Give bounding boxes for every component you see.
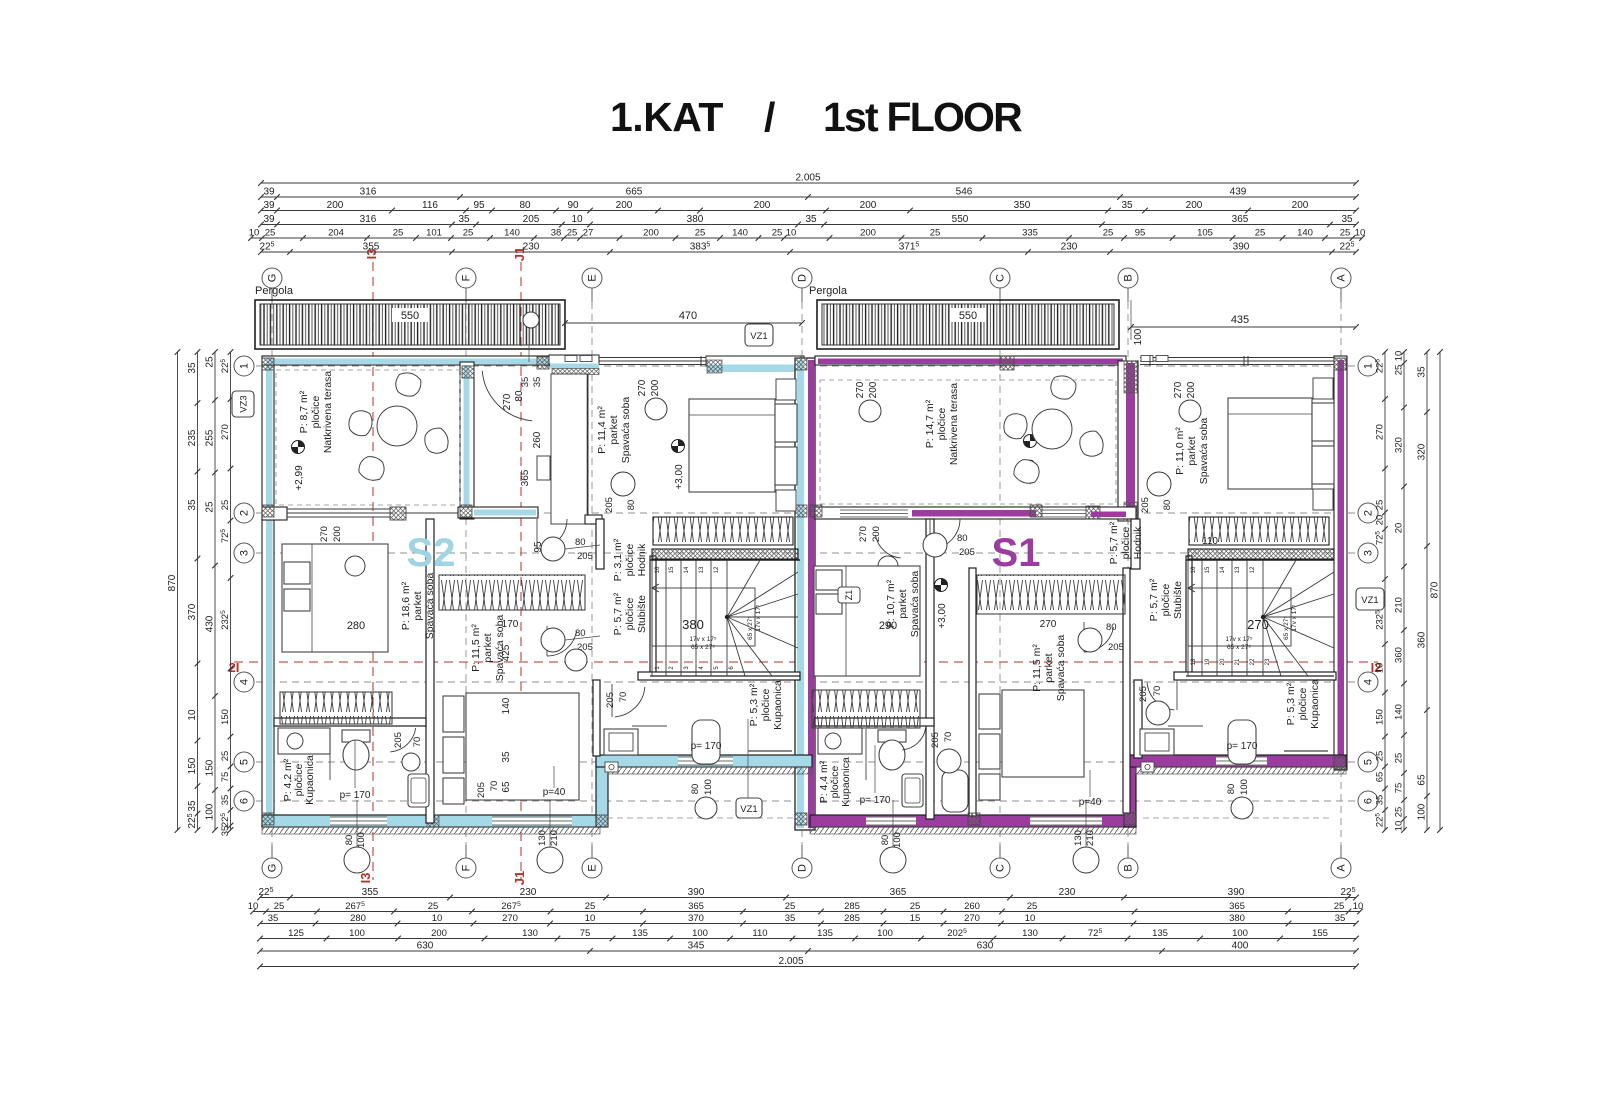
svg-text:116: 116 — [422, 200, 438, 211]
svg-text:P: 4,4 m²: P: 4,4 m² — [818, 760, 830, 803]
svg-text:Kupaonica: Kupaonica — [840, 757, 852, 807]
svg-text:35: 35 — [1341, 214, 1353, 225]
svg-text:205: 205 — [393, 732, 404, 748]
svg-text:400: 400 — [1232, 941, 1249, 952]
svg-text:285: 285 — [844, 901, 860, 912]
svg-text:P: 5,7 m²: P: 5,7 m² — [612, 592, 624, 635]
svg-text:135: 135 — [817, 928, 833, 939]
svg-text:1: 1 — [1363, 363, 1375, 369]
svg-text:10: 10 — [786, 228, 797, 239]
svg-text:200: 200 — [332, 526, 343, 542]
svg-text:270: 270 — [964, 913, 980, 924]
svg-text:2.005: 2.005 — [795, 173, 820, 184]
svg-text:380: 380 — [1229, 913, 1245, 924]
svg-text:320: 320 — [1394, 437, 1405, 453]
svg-text:E: E — [587, 274, 599, 281]
svg-text:665: 665 — [626, 187, 643, 198]
svg-text:200: 200 — [860, 200, 877, 211]
svg-text:P: 4,2 m²: P: 4,2 m² — [282, 758, 294, 801]
svg-text:1st FLOOR: 1st FLOOR — [823, 94, 1022, 140]
svg-text:25: 25 — [585, 901, 596, 912]
svg-text:2.005: 2.005 — [778, 956, 803, 967]
svg-text:B: B — [1123, 274, 1135, 281]
svg-text:B: B — [1123, 864, 1135, 871]
svg-text:25: 25 — [220, 751, 231, 762]
svg-text:80: 80 — [957, 533, 968, 544]
svg-text:390: 390 — [688, 887, 705, 898]
svg-text:140: 140 — [732, 228, 748, 239]
svg-text:65: 65 — [1417, 774, 1428, 786]
svg-text:70: 70 — [943, 732, 954, 743]
svg-text:550: 550 — [401, 310, 419, 322]
svg-text:25: 25 — [463, 228, 474, 239]
svg-text:pločice: pločice — [624, 543, 636, 576]
svg-text:80: 80 — [1162, 500, 1173, 511]
svg-text:270: 270 — [858, 526, 869, 542]
svg-text:25: 25 — [393, 228, 404, 239]
svg-text:pločice: pločice — [936, 407, 948, 440]
svg-text:10: 10 — [187, 709, 198, 721]
svg-text:Spavaća soba: Spavaća soba — [620, 397, 632, 464]
svg-text:10: 10 — [1394, 351, 1405, 362]
svg-text:205: 205 — [1138, 686, 1149, 702]
svg-text:140: 140 — [1394, 704, 1405, 720]
svg-text:35: 35 — [501, 751, 512, 763]
svg-text:parket: parket — [1186, 436, 1198, 465]
svg-text:65: 65 — [501, 781, 512, 793]
svg-text:200: 200 — [1292, 200, 1309, 211]
svg-text:70: 70 — [618, 692, 629, 703]
svg-text:Spavaća soba: Spavaća soba — [494, 615, 506, 682]
svg-text:270: 270 — [1247, 617, 1269, 632]
svg-text:parket: parket — [482, 633, 494, 662]
svg-text:205: 205 — [523, 214, 540, 225]
svg-text:135: 135 — [1152, 928, 1168, 939]
svg-text:470: 470 — [679, 310, 697, 322]
svg-text:15: 15 — [669, 566, 675, 573]
svg-text:130: 130 — [537, 830, 548, 846]
svg-text:235: 235 — [187, 429, 198, 446]
svg-text:25: 25 — [274, 901, 285, 912]
svg-text:15: 15 — [1205, 566, 1211, 573]
svg-text:270: 270 — [637, 379, 648, 396]
svg-text:P: 18,6 m²: P: 18,6 m² — [400, 581, 412, 630]
svg-text:3: 3 — [1363, 550, 1375, 556]
svg-text:205: 205 — [577, 551, 593, 562]
svg-text:Stubište: Stubište — [636, 595, 648, 633]
svg-text:150: 150 — [205, 759, 216, 776]
svg-text:F: F — [461, 274, 473, 281]
svg-text:80: 80 — [626, 500, 637, 511]
svg-text:25: 25 — [205, 356, 216, 368]
svg-text:350: 350 — [1014, 200, 1031, 211]
svg-text:VZ1: VZ1 — [740, 804, 757, 815]
svg-text:200: 200 — [1186, 381, 1197, 398]
svg-text:Kupaonica: Kupaonica — [304, 755, 316, 805]
svg-text:210: 210 — [1394, 597, 1405, 613]
svg-text:21: 21 — [1235, 658, 1241, 665]
svg-text:D: D — [797, 864, 809, 872]
svg-text:270: 270 — [855, 381, 866, 398]
svg-text:Spavaća soba: Spavaća soba — [424, 573, 436, 640]
svg-text:P: 10,7 m²: P: 10,7 m² — [885, 579, 897, 628]
svg-text:870: 870 — [1430, 581, 1441, 598]
svg-text:345: 345 — [688, 941, 705, 952]
svg-text:I3: I3 — [358, 873, 373, 884]
svg-text:390: 390 — [1228, 887, 1245, 898]
svg-text:Natkrivena terasa: Natkrivena terasa — [948, 383, 960, 465]
svg-text:pločice: pločice — [1160, 583, 1172, 616]
svg-text:360: 360 — [1417, 631, 1428, 648]
svg-text:2: 2 — [1363, 510, 1375, 516]
svg-text:150: 150 — [187, 757, 198, 774]
svg-text:35: 35 — [187, 362, 198, 374]
svg-text:100: 100 — [1239, 779, 1250, 795]
svg-text:19: 19 — [1205, 658, 1211, 665]
svg-text:25: 25 — [567, 228, 578, 239]
svg-text:pločice: pločice — [624, 597, 636, 630]
svg-text:25: 25 — [1375, 751, 1386, 762]
svg-text:270: 270 — [319, 526, 330, 542]
svg-text:10: 10 — [249, 228, 260, 239]
svg-text:65 x 27⁵: 65 x 27⁵ — [1283, 616, 1290, 640]
svg-text:35: 35 — [520, 377, 531, 388]
svg-text:20: 20 — [1220, 658, 1226, 665]
svg-text:35: 35 — [268, 913, 279, 924]
svg-text:parket: parket — [1043, 653, 1055, 682]
svg-text:365: 365 — [520, 469, 531, 486]
svg-text:15: 15 — [910, 913, 921, 924]
svg-text:39: 39 — [263, 214, 275, 225]
svg-text:35: 35 — [1335, 913, 1346, 924]
svg-text:35: 35 — [1417, 366, 1428, 378]
svg-text:100: 100 — [1133, 328, 1144, 345]
svg-text:365: 365 — [1232, 214, 1249, 225]
svg-text:630: 630 — [977, 941, 994, 952]
svg-text:205: 205 — [1108, 642, 1124, 653]
svg-text:parket: parket — [412, 591, 424, 620]
svg-text:280: 280 — [350, 913, 366, 924]
svg-text:365: 365 — [890, 887, 907, 898]
svg-text:80: 80 — [519, 200, 531, 211]
svg-text:25: 25 — [1394, 365, 1405, 376]
svg-text:25: 25 — [695, 228, 706, 239]
svg-text:35: 35 — [785, 913, 796, 924]
svg-text:230: 230 — [523, 242, 540, 253]
svg-text:95: 95 — [473, 200, 485, 211]
svg-text:270: 270 — [502, 913, 518, 924]
svg-text:260: 260 — [532, 431, 543, 448]
svg-text:35: 35 — [187, 800, 198, 812]
svg-text:C: C — [995, 274, 1007, 282]
svg-text:320: 320 — [1417, 443, 1428, 460]
svg-text:200: 200 — [754, 200, 771, 211]
svg-text:pločice: pločice — [1297, 687, 1309, 720]
svg-text:25: 25 — [1255, 228, 1266, 239]
svg-text:4: 4 — [239, 679, 251, 685]
svg-text:1.KAT: 1.KAT — [610, 94, 723, 140]
svg-text:140: 140 — [504, 228, 520, 239]
svg-text:10: 10 — [1025, 913, 1036, 924]
svg-text:100: 100 — [892, 832, 903, 848]
svg-text:200: 200 — [1186, 200, 1203, 211]
svg-text:355: 355 — [362, 887, 379, 898]
svg-text:80: 80 — [1106, 622, 1117, 633]
svg-text:270: 270 — [1173, 381, 1184, 398]
svg-text:G: G — [267, 864, 279, 873]
svg-text:C: C — [995, 864, 1007, 872]
svg-text:105: 105 — [1197, 228, 1213, 239]
svg-text:10: 10 — [571, 214, 583, 225]
svg-text:16: 16 — [1191, 566, 1197, 573]
svg-text:+3,00: +3,00 — [937, 603, 948, 629]
svg-text:G: G — [267, 274, 279, 283]
svg-text:75: 75 — [1394, 783, 1405, 794]
svg-text:22: 22 — [1250, 658, 1256, 665]
svg-text:430: 430 — [205, 615, 216, 632]
svg-text:25: 25 — [930, 228, 941, 239]
svg-text:Kupaonica: Kupaonica — [772, 680, 784, 730]
svg-text:70: 70 — [1152, 686, 1163, 697]
svg-text:Hodnik: Hodnik — [1132, 526, 1144, 559]
svg-text:17v x 17⁵: 17v x 17⁵ — [755, 604, 762, 632]
svg-text:13: 13 — [699, 566, 705, 573]
svg-text:p= 170: p= 170 — [860, 795, 891, 806]
svg-text:125: 125 — [288, 928, 304, 939]
svg-text:435: 435 — [1231, 314, 1249, 326]
svg-text:38: 38 — [551, 228, 562, 239]
svg-text:316: 316 — [360, 187, 377, 198]
svg-text:155: 155 — [1312, 928, 1328, 939]
svg-text:parket: parket — [897, 589, 909, 618]
svg-text:110: 110 — [752, 928, 767, 939]
svg-text:10: 10 — [432, 913, 443, 924]
svg-text:10: 10 — [1375, 663, 1386, 674]
svg-text:1: 1 — [239, 363, 251, 369]
svg-text:230: 230 — [1061, 242, 1078, 253]
svg-text:Natkrivena terasa: Natkrivena terasa — [322, 371, 334, 453]
svg-text:2: 2 — [239, 510, 251, 516]
svg-text:255: 255 — [205, 429, 216, 446]
svg-text:285: 285 — [844, 913, 860, 924]
svg-text:39: 39 — [263, 200, 275, 211]
svg-text:25: 25 — [205, 501, 216, 513]
svg-text:35: 35 — [220, 826, 231, 837]
svg-text:205: 205 — [1140, 497, 1151, 513]
svg-text:P: 11,5 m²: P: 11,5 m² — [1031, 644, 1043, 692]
svg-text:365: 365 — [1229, 901, 1245, 912]
svg-text:370: 370 — [688, 913, 704, 924]
svg-text:Hodnik: Hodnik — [636, 543, 648, 576]
svg-text:Spavaća soba: Spavaća soba — [909, 571, 921, 638]
svg-text:95: 95 — [1135, 228, 1146, 239]
svg-text:+3,00: +3,00 — [674, 464, 685, 490]
svg-text:10: 10 — [585, 913, 596, 924]
svg-text:230: 230 — [1059, 887, 1076, 898]
svg-text:pločice: pločice — [310, 395, 322, 428]
svg-text:12: 12 — [1250, 566, 1256, 573]
svg-text:Pergola: Pergola — [255, 285, 294, 297]
svg-text:3: 3 — [239, 550, 251, 556]
svg-text:10: 10 — [1394, 821, 1405, 832]
svg-text:20: 20 — [1394, 523, 1405, 534]
svg-text:630: 630 — [417, 941, 434, 952]
svg-text:P: 3,1 m²: P: 3,1 m² — [612, 538, 624, 581]
svg-text:370: 370 — [187, 603, 198, 620]
svg-text:P: 5,3 m²: P: 5,3 m² — [1285, 682, 1297, 725]
svg-text:25: 25 — [1334, 901, 1345, 912]
svg-text:18: 18 — [1191, 658, 1197, 665]
svg-text:Spavaća soba: Spavaća soba — [1198, 418, 1210, 485]
svg-text:870: 870 — [167, 574, 178, 591]
svg-text:200: 200 — [327, 200, 344, 211]
svg-text:p=40: p=40 — [1079, 797, 1102, 808]
svg-text:p=40: p=40 — [543, 787, 566, 798]
svg-text:130: 130 — [522, 928, 538, 939]
svg-text:14: 14 — [684, 566, 690, 573]
svg-text:439: 439 — [1230, 187, 1247, 198]
svg-text:205: 205 — [476, 782, 487, 798]
svg-text:205: 205 — [930, 732, 941, 748]
svg-text:25: 25 — [1340, 228, 1351, 239]
svg-text:100: 100 — [205, 803, 216, 820]
svg-text:16: 16 — [655, 566, 661, 573]
svg-text:65 x 27⁵: 65 x 27⁵ — [747, 616, 754, 640]
svg-text:150: 150 — [1375, 709, 1386, 725]
svg-text:270: 270 — [502, 393, 513, 410]
svg-text:pločice: pločice — [293, 763, 305, 796]
svg-text:12: 12 — [714, 566, 720, 573]
svg-text:270: 270 — [1375, 424, 1386, 440]
svg-text:parket: parket — [608, 415, 620, 444]
svg-text:316: 316 — [360, 214, 377, 225]
svg-text:380: 380 — [687, 214, 704, 225]
svg-text:pločice: pločice — [829, 765, 841, 798]
svg-text:10: 10 — [1355, 228, 1366, 239]
svg-text:101: 101 — [426, 228, 442, 239]
svg-text:P: 5,7 m²: P: 5,7 m² — [1148, 578, 1160, 621]
svg-text:D: D — [797, 274, 809, 282]
svg-text:100: 100 — [703, 779, 714, 795]
svg-text:p= 170: p= 170 — [1227, 741, 1258, 752]
svg-text:J1: J1 — [512, 871, 527, 885]
svg-text:210: 210 — [1085, 830, 1096, 846]
svg-text:80: 80 — [690, 784, 701, 795]
svg-text:Z1: Z1 — [844, 590, 854, 601]
svg-text:135: 135 — [632, 928, 648, 939]
svg-text:200: 200 — [431, 928, 447, 939]
svg-text:/: / — [764, 94, 775, 140]
svg-text:P: 5,3 m²: P: 5,3 m² — [748, 683, 760, 726]
svg-text:4: 4 — [1363, 679, 1375, 685]
svg-text:F: F — [461, 864, 473, 871]
svg-text:25: 25 — [1103, 228, 1114, 239]
svg-text:25: 25 — [428, 901, 439, 912]
svg-text:pločice: pločice — [1120, 526, 1132, 559]
svg-text:17v x 17⁵: 17v x 17⁵ — [689, 636, 717, 643]
svg-text:6: 6 — [239, 798, 251, 804]
svg-text:205: 205 — [604, 497, 615, 513]
svg-text:P: 14,7 m²: P: 14,7 m² — [924, 399, 936, 448]
svg-text:P: 11,0 m²: P: 11,0 m² — [1174, 427, 1186, 475]
svg-text:23: 23 — [1265, 658, 1271, 665]
svg-text:280: 280 — [347, 620, 365, 632]
svg-text:13: 13 — [1235, 566, 1241, 573]
svg-text:6: 6 — [1363, 798, 1375, 804]
svg-text:100: 100 — [1417, 803, 1428, 820]
svg-text:14: 14 — [1220, 566, 1226, 573]
svg-text:25: 25 — [1027, 901, 1038, 912]
svg-text:70: 70 — [412, 737, 423, 748]
svg-text:80: 80 — [1226, 784, 1237, 795]
svg-text:25: 25 — [220, 500, 231, 511]
svg-text:39: 39 — [263, 187, 275, 198]
svg-text:35: 35 — [805, 214, 817, 225]
svg-text:140: 140 — [501, 697, 512, 714]
svg-text:25: 25 — [785, 901, 796, 912]
svg-text:Stubište: Stubište — [1172, 581, 1184, 619]
svg-text:205: 205 — [959, 547, 975, 558]
svg-text:130: 130 — [1022, 928, 1038, 939]
svg-text:204: 204 — [328, 228, 344, 239]
svg-text:E: E — [587, 864, 599, 871]
svg-text:110: 110 — [1202, 536, 1218, 547]
svg-text:335: 335 — [1022, 228, 1038, 239]
svg-text:150: 150 — [220, 709, 231, 725]
svg-text:P: 11,4 m²: P: 11,4 m² — [596, 406, 608, 454]
svg-text:390: 390 — [1233, 242, 1250, 253]
svg-text:Spavaća soba: Spavaća soba — [1055, 635, 1067, 702]
svg-text:80: 80 — [344, 835, 355, 846]
svg-text:25: 25 — [1375, 500, 1386, 511]
svg-text:550: 550 — [952, 214, 969, 225]
svg-text:200: 200 — [860, 228, 876, 239]
svg-text:205: 205 — [605, 692, 616, 708]
svg-text:A: A — [1336, 274, 1348, 282]
svg-text:65: 65 — [1375, 772, 1386, 783]
svg-text:25: 25 — [1394, 753, 1405, 764]
svg-text:75: 75 — [220, 772, 231, 783]
svg-text:80: 80 — [575, 628, 586, 639]
svg-text:80: 80 — [880, 835, 891, 846]
svg-text:65 x 27⁵: 65 x 27⁵ — [1227, 644, 1251, 651]
svg-text:10: 10 — [248, 901, 259, 912]
svg-text:5: 5 — [239, 759, 251, 765]
svg-text:80: 80 — [514, 390, 525, 402]
svg-text:S1: S1 — [992, 531, 1041, 575]
svg-text:365: 365 — [688, 901, 704, 912]
svg-text:80: 80 — [575, 537, 586, 548]
svg-text:A: A — [1336, 864, 1348, 872]
svg-text:65 x 27⁵: 65 x 27⁵ — [691, 644, 715, 651]
svg-text:100: 100 — [877, 928, 893, 939]
svg-text:25: 25 — [1394, 807, 1405, 818]
svg-text:90: 90 — [567, 200, 579, 211]
svg-text:25: 25 — [910, 901, 921, 912]
svg-text:pločice: pločice — [760, 688, 772, 721]
svg-text:17v x 17⁵: 17v x 17⁵ — [1225, 636, 1253, 643]
svg-text:27: 27 — [583, 228, 594, 239]
svg-text:25: 25 — [265, 228, 276, 239]
svg-text:546: 546 — [956, 187, 973, 198]
svg-text:35: 35 — [187, 499, 198, 511]
svg-text:75: 75 — [580, 928, 591, 939]
svg-text:380: 380 — [682, 617, 704, 632]
svg-text:550: 550 — [959, 310, 977, 322]
svg-text:S2: S2 — [407, 531, 456, 575]
svg-text:100: 100 — [349, 928, 365, 939]
svg-text:P: 5,7 m²: P: 5,7 m² — [1108, 521, 1120, 564]
